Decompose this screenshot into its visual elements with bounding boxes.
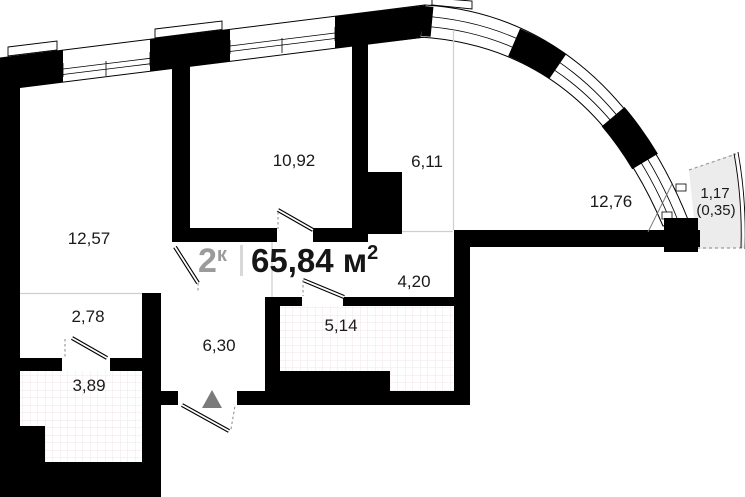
wall-12-76-bottom <box>454 230 700 247</box>
vent-shaft <box>22 466 141 481</box>
door-3-89 <box>65 338 107 358</box>
vent-shaft <box>271 376 359 389</box>
vent-shaft <box>20 431 40 461</box>
exterior-wall-curve <box>420 5 689 226</box>
title-divider <box>240 245 243 276</box>
door-10-92 <box>278 210 313 230</box>
room-area-label-6-11: 6,11 <box>411 152 443 171</box>
balcony-area-label: 1,17 <box>700 185 729 202</box>
balcony-door-jamb <box>662 212 672 219</box>
vent-shaft <box>362 203 394 228</box>
curved-wall-segments <box>422 21 676 224</box>
exterior-wall-top <box>0 0 472 90</box>
curved-wall-band <box>420 5 689 226</box>
wall-10-92-bottom <box>183 228 277 242</box>
wall-left <box>0 86 20 466</box>
floor-plan-drawing: 12,57 10,92 6,11 12,76 4,20 2,78 6,30 5,… <box>0 0 745 497</box>
wall-5-14-top <box>343 297 455 306</box>
door-12-57 <box>175 247 198 292</box>
entrance-arrow <box>202 390 222 408</box>
room-area-label-3-89: 3,89 <box>72 376 105 395</box>
door-entrance <box>182 405 235 431</box>
balcony-door-jamb <box>676 184 686 191</box>
title-room-count: 2к <box>198 242 228 280</box>
wall-2-78-bottom <box>20 358 62 371</box>
wall-bottom-entry <box>142 391 178 405</box>
wall-2-78-bottom <box>110 358 158 371</box>
vent-shaft <box>364 376 381 389</box>
room-area-label-12-57: 12,57 <box>68 229 111 248</box>
wall-12-57-right <box>172 62 190 242</box>
floor-plan: 12,57 10,92 6,11 12,76 4,20 2,78 6,30 5,… <box>0 0 745 497</box>
wall-pier-balcony <box>664 218 698 252</box>
room-area-label-5-14: 5,14 <box>324 316 357 335</box>
title-total-area: 65,84 м2 <box>251 242 378 279</box>
plan-title: 2к 65,84 м2 <box>198 242 378 280</box>
room-area-label-6-30: 6,30 <box>202 336 235 355</box>
room-area-label-10-92: 10,92 <box>273 151 316 170</box>
vent-shaft <box>362 179 394 198</box>
room-area-label-4-20: 4,20 <box>397 272 430 291</box>
room-area-label-12-76: 12,76 <box>590 192 633 211</box>
wall-right <box>454 230 470 405</box>
room-area-label-2-78: 2,78 <box>71 307 104 326</box>
wall-5-14-top <box>265 297 302 306</box>
door-5-14 <box>303 280 344 297</box>
balcony-reduced-area-label: (0,35) <box>696 202 735 219</box>
